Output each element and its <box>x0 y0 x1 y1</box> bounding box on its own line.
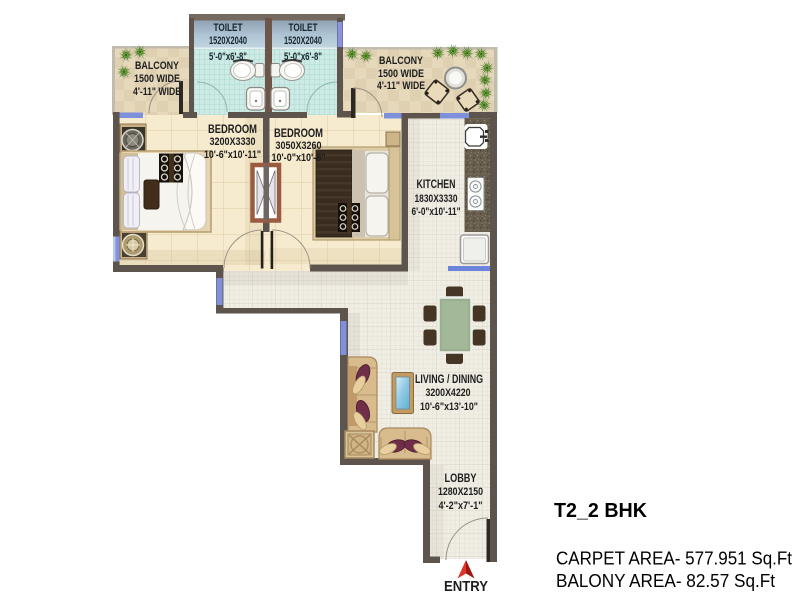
svg-text:5'-0"x6'-8": 5'-0"x6'-8" <box>284 51 322 63</box>
svg-text:3050X3260: 3050X3260 <box>276 140 322 152</box>
svg-text:3200X4220: 3200X4220 <box>426 387 471 399</box>
svg-text:BEDROOM: BEDROOM <box>274 126 323 140</box>
svg-text:LOBBY: LOBBY <box>445 471 477 485</box>
svg-text:6'-0"x10'-11": 6'-0"x10'-11" <box>412 206 461 218</box>
svg-text:TOILET: TOILET <box>214 22 243 34</box>
svg-text:10'-6"x13'-10": 10'-6"x13'-10" <box>420 401 478 413</box>
svg-text:3200X3330: 3200X3330 <box>210 136 256 148</box>
svg-text:4'-11" WIDE: 4'-11" WIDE <box>133 86 181 98</box>
svg-text:4'-2"x7'-1": 4'-2"x7'-1" <box>439 500 483 512</box>
svg-text:CARPET AREA- 577.951 Sq.Ft: CARPET AREA- 577.951 Sq.Ft <box>556 549 792 569</box>
svg-text:10'-0"x10'-8": 10'-0"x10'-8" <box>272 152 326 164</box>
svg-text:1280X2150: 1280X2150 <box>438 486 483 498</box>
svg-text:KITCHEN: KITCHEN <box>417 177 456 191</box>
svg-text:ENTRY: ENTRY <box>444 578 488 595</box>
svg-text:BALCONY: BALCONY <box>379 55 424 67</box>
svg-text:1830X3330: 1830X3330 <box>415 193 458 205</box>
svg-text:10'-6"x10'-11": 10'-6"x10'-11" <box>204 149 261 161</box>
svg-text:BALCONY: BALCONY <box>135 60 180 72</box>
svg-text:BALONY AREA- 82.57 Sq.Ft: BALONY AREA- 82.57 Sq.Ft <box>556 571 775 591</box>
svg-text:1500 WIDE: 1500 WIDE <box>378 68 424 80</box>
svg-text:1520X2040: 1520X2040 <box>209 35 247 47</box>
svg-text:4'-11" WIDE: 4'-11" WIDE <box>377 80 425 92</box>
svg-text:BEDROOM: BEDROOM <box>208 122 257 136</box>
svg-text:TOILET: TOILET <box>289 22 318 34</box>
svg-text:T2_2 BHK: T2_2 BHK <box>554 500 648 522</box>
svg-text:5'-0"x6'-8": 5'-0"x6'-8" <box>209 51 247 63</box>
svg-text:1520X2040: 1520X2040 <box>284 35 322 47</box>
svg-text:LIVING / DINING: LIVING / DINING <box>415 372 483 386</box>
svg-text:1500 WIDE: 1500 WIDE <box>134 73 180 85</box>
